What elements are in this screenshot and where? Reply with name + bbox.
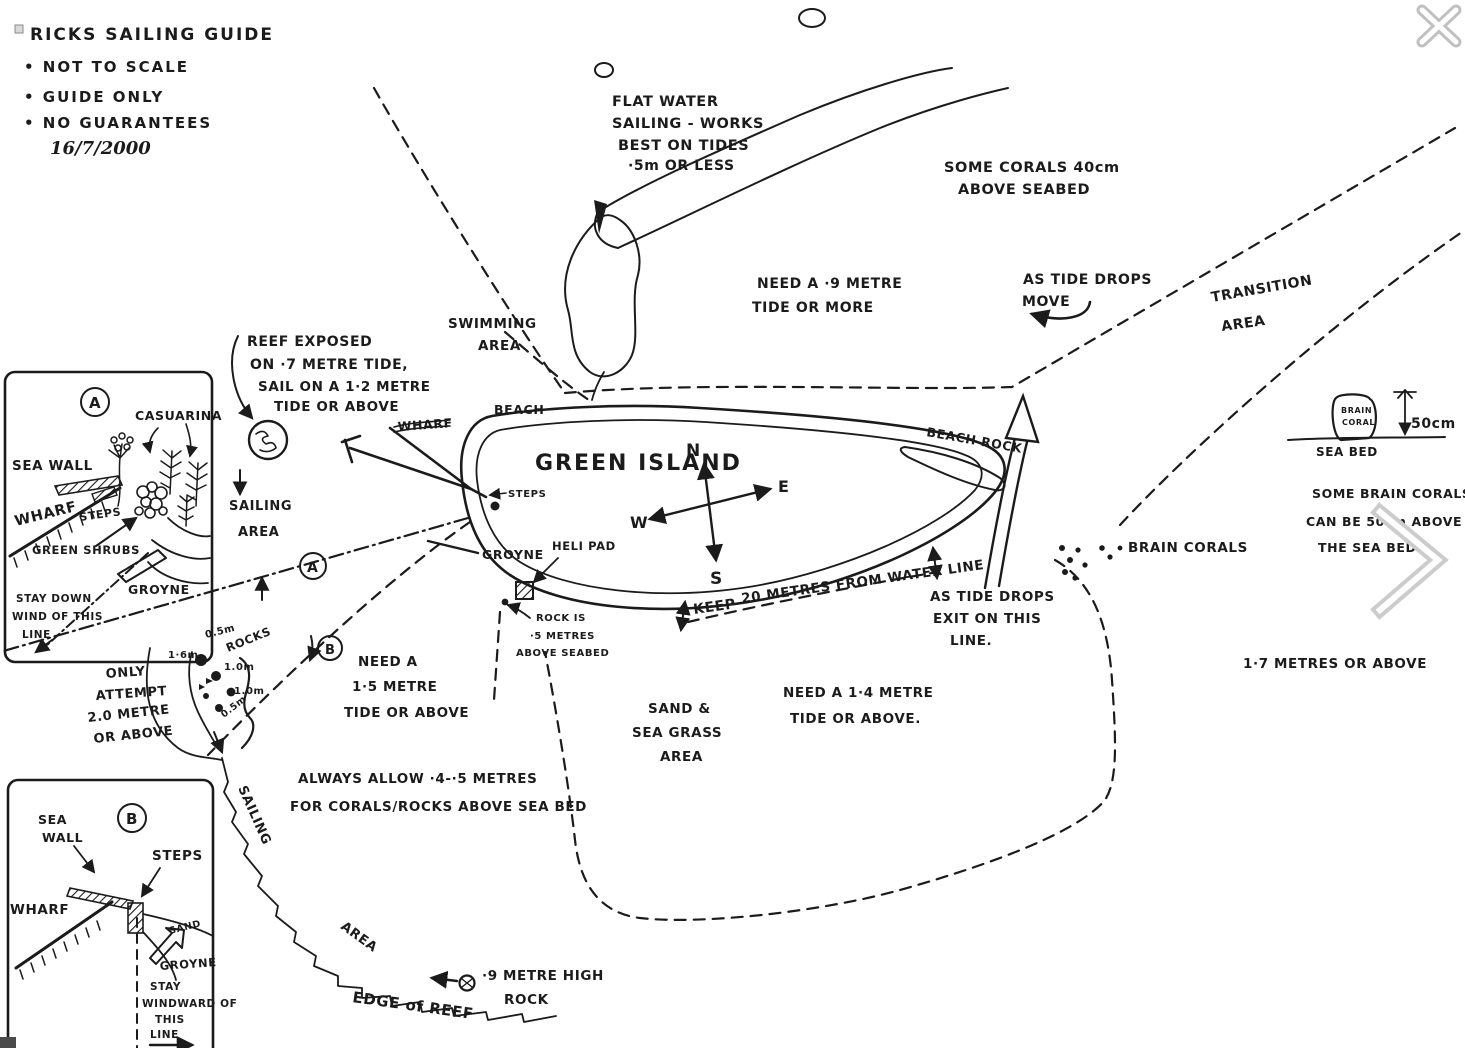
some-brain-3: THE SEA BED: [1318, 540, 1417, 555]
steps-pointer: [490, 493, 506, 495]
svg-text:A: A: [307, 560, 318, 576]
swimming-2: AREA: [478, 338, 521, 354]
brain-coral-dots: [1059, 545, 1122, 581]
rock9m-2: ROCK: [504, 992, 549, 1008]
depth-10a: 1.0m: [224, 662, 255, 673]
inset-a-stay-3: LINE: [22, 629, 51, 641]
reef-exposed-2: ON ·7 METRE TIDE,: [250, 357, 408, 373]
sand-grass-3: AREA: [660, 749, 703, 765]
note-guide-only: • GUIDE ONLY: [24, 88, 164, 106]
inset-a-letter: A: [89, 394, 101, 412]
need14-2: TIDE OR ABOVE.: [790, 711, 921, 727]
need9-1: NEED A ·9 METRE: [757, 276, 902, 292]
transition-2: AREA: [1220, 313, 1266, 335]
rock-is-3: ABOVE SEABED: [516, 648, 609, 659]
inset-a-groyne-label: GROYNE: [128, 582, 190, 597]
title-block: RICKS SAILING GUIDE • NOT TO SCALE • GUI…: [15, 25, 274, 159]
need15-3: TIDE OR ABOVE: [344, 705, 469, 721]
flat-water-2: SAILING - WORKS: [612, 116, 764, 132]
main-map: N E W S A: [0, 9, 1465, 1023]
coral-height-label: 50cm: [1411, 416, 1456, 432]
depth-16: 1·6m: [168, 650, 199, 661]
always-allow-2: FOR CORALS/ROCKS ABOVE SEA BED: [290, 799, 587, 815]
tide-drops-move-2: MOVE: [1022, 294, 1070, 310]
exit-2: EXIT ON THIS: [933, 611, 1042, 627]
sailing-area-left-1: SAILING: [229, 499, 292, 514]
some-brain-1: SOME BRAIN CORALS: [1312, 486, 1465, 501]
inset-a-wharf-label: WHARF: [13, 499, 78, 530]
rock-pointer: [508, 605, 530, 618]
offshore-rock-1: [799, 9, 825, 27]
inset-b-sea-wall-2: WALL: [42, 830, 83, 845]
brain-blob-line2: CORAL: [1342, 418, 1375, 427]
flat-water-3: BEST ON TIDES: [618, 138, 749, 154]
inset-b: B SEA WALL WHARF STEPS SAND GROYNE STAY …: [8, 780, 237, 1048]
guide-date: 16/7/2000: [50, 138, 151, 159]
inset-b-sea-wall-arrow: [74, 846, 94, 872]
island-name: GREEN ISLAND: [535, 451, 742, 476]
rock-is-1: ROCK IS: [536, 613, 586, 624]
inset-a-stay-1: STAY DOWN: [16, 593, 92, 605]
coral-blob: [249, 421, 287, 459]
rock9m-1: ·9 METRE HIGH: [482, 968, 604, 984]
flat-water-1: FLAT WATER: [612, 94, 719, 110]
inset-b-steps: [128, 903, 143, 933]
green-shrubs-label: GREEN SHRUBS: [32, 543, 140, 557]
some-corals-2: ABOVE SEABED: [958, 182, 1090, 198]
brain-corals-label: BRAIN CORALS: [1128, 540, 1248, 556]
brain-coral-diagram: BRAIN CORAL 50cm SEA BED: [1288, 390, 1456, 459]
casuarina-trees: [109, 433, 207, 526]
guide-title: RICKS SAILING GUIDE: [30, 25, 274, 45]
inset-b-wharf-label: WHARF: [10, 902, 69, 918]
brain-blob-line1: BRAIN: [1341, 406, 1372, 415]
beach-rock-shape: [901, 447, 1005, 490]
only-3: 2.0 METRE: [87, 702, 171, 726]
inset-b-steps-label: STEPS: [152, 848, 203, 864]
inset-b-stay-4: LINE: [150, 1029, 179, 1041]
inset-b-groyne-label: GROYNE: [159, 955, 217, 973]
metres17-label: 1·7 METRES OR ABOVE: [1243, 656, 1427, 672]
need9-2: TIDE OR MORE: [752, 300, 874, 316]
inset-b-steps-arrow: [142, 868, 160, 896]
casuarina-arrow-2: [186, 424, 191, 456]
close-icon[interactable]: [1422, 10, 1456, 42]
always-allow-1: ALWAYS ALLOW ·4-·5 METRES: [298, 771, 537, 787]
sand-grass-2: SEA GRASS: [632, 725, 722, 741]
inset-b-stay-2: WINDWARD OF: [142, 998, 237, 1010]
exit-1: AS TIDE DROPS: [930, 589, 1055, 605]
inset-b-letter: B: [126, 810, 138, 828]
steps-rock-mark: [491, 502, 500, 511]
tide-drops-move-1: AS TIDE DROPS: [1023, 272, 1152, 288]
rock-is-2: ·5 METRES: [530, 631, 595, 642]
svg-text:B: B: [325, 643, 336, 658]
only-1: ONLY: [105, 664, 146, 682]
reef-exposed-1: REEF EXPOSED: [247, 334, 372, 350]
compass-s: S: [710, 569, 723, 589]
only-4: OR ABOVE: [93, 724, 174, 747]
exit-arrow: [985, 396, 1038, 588]
compass-w: W: [630, 513, 648, 532]
swimming-1: SWIMMING: [448, 316, 537, 332]
corner-artifact: [0, 1037, 16, 1048]
transition-1: TRANSITION: [1210, 272, 1314, 306]
beach-label: BEACH: [494, 402, 544, 417]
green-shrubs-arrow: [96, 518, 136, 546]
inset-b-stay-1: STAY: [150, 981, 181, 993]
inset-b-sea-wall-1: SEA: [38, 812, 67, 827]
wharf-label: WHARF: [397, 415, 453, 434]
offshore-rock-2: [595, 63, 613, 77]
sand-grass-1: SAND &: [648, 701, 711, 717]
sailing-area-left-2: AREA: [238, 525, 279, 540]
route-marker-a: A: [300, 553, 326, 579]
compass-e: E: [778, 477, 790, 496]
flat-water-4: ·5m OR LESS: [628, 158, 735, 174]
need14-1: NEED A 1·4 METRE: [783, 685, 934, 701]
area-reef-label: AREA: [338, 919, 380, 955]
steps-label: STEPS: [508, 489, 546, 500]
edge-reef-label: EDGE of REEF: [351, 988, 474, 1023]
note-no-guarantees: • NO GUARANTEES: [24, 114, 212, 132]
inset-b-sea-wall: [67, 888, 133, 909]
artifact-square: [15, 25, 23, 33]
route-marker-b: B: [310, 636, 342, 660]
some-corals-1: SOME CORALS 40cm: [944, 160, 1120, 176]
exit-3: LINE.: [950, 633, 992, 649]
casuarina-label: CASUARINA: [135, 408, 222, 423]
sailing-guide-map: RICKS SAILING GUIDE • NOT TO SCALE • GUI…: [0, 0, 1465, 1048]
groyne-label: GROYNE: [482, 547, 544, 562]
need15-1: NEED A: [358, 654, 418, 670]
only-2: ATTEMPT: [95, 684, 167, 704]
heli-pad-square: [516, 582, 533, 599]
keep-arrow-left: [681, 602, 685, 630]
green-shrubs-cluster: [135, 482, 167, 518]
heli-pad-label: HELI PAD: [552, 539, 616, 553]
sailing-reef-label: SAILING: [234, 784, 273, 848]
dashed-routes: [208, 88, 1462, 920]
keep-label: KEEP: [692, 596, 736, 618]
inset-b-stay-3: THIS: [155, 1014, 185, 1026]
inset-a-sea-wall-label: SEA WALL: [12, 458, 93, 474]
note-not-to-scale: • NOT TO SCALE: [24, 58, 189, 76]
need15-2: 1·5 METRE: [352, 679, 438, 695]
reef-exposed-3: SAIL ON A 1·2 METRE: [258, 379, 431, 395]
inset-a-stay-2: WIND OF THIS: [12, 611, 103, 623]
nine-metre-rock: [432, 976, 475, 991]
reef-exposed-4: TIDE OR ABOVE: [274, 399, 399, 415]
sea-bed-label: SEA BED: [1316, 445, 1378, 459]
casuarina-arrow-1: [149, 428, 158, 452]
